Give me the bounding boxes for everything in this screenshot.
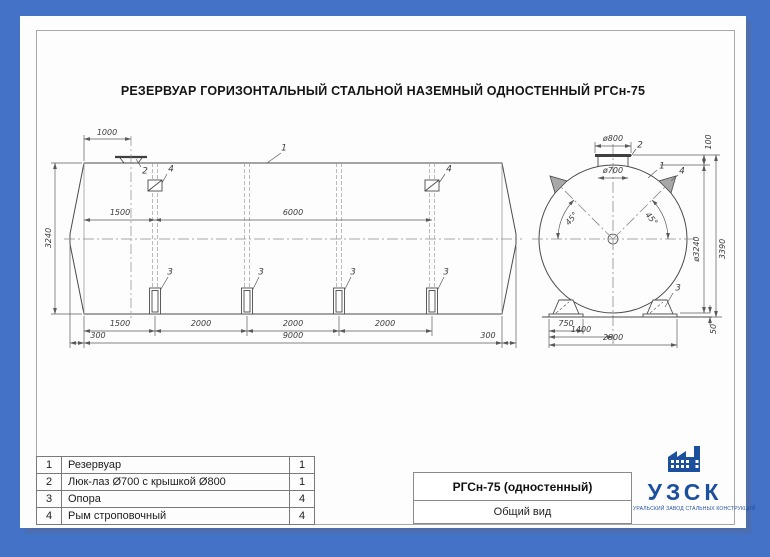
part-qty: 4 [290, 508, 315, 525]
dim-1500-bottom: 1500 [110, 320, 130, 328]
callout-manhole-end: 2 [637, 142, 643, 151]
end-leaders [631, 149, 678, 307]
callout-support-4: 3 [443, 269, 449, 278]
dim-d700: ø700 [603, 167, 623, 175]
dim-2000-c: 2000 [375, 320, 395, 328]
part-pos: 4 [37, 508, 62, 525]
dim-d3240: ø3240 [693, 236, 701, 261]
callout-support-end: 3 [675, 285, 681, 294]
title-block-model: РГСн-75 (одностенный) [414, 473, 631, 501]
part-qty: 1 [290, 457, 315, 474]
callout-eye-right: 4 [446, 166, 452, 175]
callout-support-2: 3 [258, 269, 264, 278]
dim-1400: 1400 [571, 326, 591, 334]
callout-eye-left: 4 [168, 166, 174, 175]
part-name: Рым строповочный [62, 508, 290, 525]
part-name: Люк-лаз Ø700 с крышкой Ø800 [62, 474, 290, 491]
callout-manhole: 2 [142, 168, 148, 177]
part-pos: 1 [37, 457, 62, 474]
dim-300-left: 300 [90, 332, 105, 340]
tank-outline [70, 163, 516, 314]
dim-1500-top: 1500 [110, 209, 130, 217]
part-name: Опора [62, 491, 290, 508]
part-pos: 2 [37, 474, 62, 491]
callout-tank: 1 [281, 145, 287, 154]
callout-support-3: 3 [350, 269, 356, 278]
logo: УЗСК УРАЛЬСКИЙ ЗАВОД СТАЛЬНЫХ КОНСТРУКЦИ… [633, 444, 737, 512]
dim-1000: 1000 [97, 129, 117, 137]
table-row: 4 Рым строповочный 4 [37, 508, 315, 525]
supports-side [150, 288, 438, 314]
part-pos: 3 [37, 491, 62, 508]
part-name: Резервуар [62, 457, 290, 474]
dim-2800: 2800 [603, 334, 623, 342]
dim-3390: 3390 [719, 239, 727, 259]
dim-3240: 3240 [45, 228, 53, 248]
lifting-eyes-side [148, 180, 439, 191]
dim-50: 50 [710, 324, 718, 334]
side-leaders [136, 153, 445, 289]
part-qty: 4 [290, 491, 315, 508]
title-block-view-name: Общий вид [414, 501, 631, 523]
dim-300-right: 300 [480, 332, 495, 340]
callout-tank-end: 1 [659, 163, 665, 172]
part-qty: 1 [290, 474, 315, 491]
title-block: РГСн-75 (одностенный) Общий вид [413, 472, 632, 524]
dim-6000: 6000 [283, 209, 303, 217]
dim-d800: ø800 [603, 135, 623, 143]
dim-2000-a: 2000 [191, 320, 211, 328]
callout-support-1: 3 [167, 269, 173, 278]
factory-icon [666, 444, 704, 474]
table-row: 3 Опора 4 [37, 491, 315, 508]
table-row: 2 Люк-лаз Ø700 с крышкой Ø800 1 [37, 474, 315, 491]
dim-9000: 9000 [283, 332, 303, 340]
table-row: 1 Резервуар 1 [37, 457, 315, 474]
dim-2000-b: 2000 [283, 320, 303, 328]
dim-100: 100 [705, 134, 713, 149]
logo-abbr: УЗСК [633, 481, 737, 504]
parts-table: 1 Резервуар 1 2 Люк-лаз Ø700 с крышкой Ø… [36, 456, 315, 525]
logo-tagline: УРАЛЬСКИЙ ЗАВОД СТАЛЬНЫХ КОНСТРУКЦИЙ [633, 506, 737, 512]
drawing-sheet: РЕЗЕРВУАР ГОРИЗОНТАЛЬНЫЙ СТАЛЬНОЙ НАЗЕМН… [20, 16, 746, 528]
callout-eye-end: 4 [679, 168, 685, 177]
support-hidden-lines [153, 163, 435, 288]
